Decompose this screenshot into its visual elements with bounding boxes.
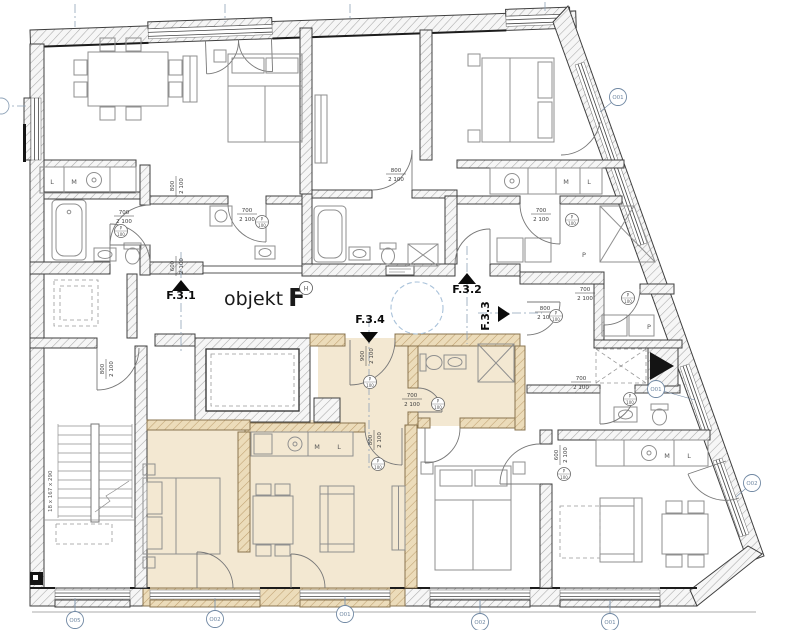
- window-tag: O01: [600, 89, 627, 113]
- svg-text:100: 100: [560, 475, 568, 480]
- elevator-shaft: [195, 338, 310, 422]
- svg-text:O02: O02: [746, 481, 757, 487]
- svg-text:2 100: 2 100: [573, 385, 589, 391]
- dashed-circle-marker: [391, 282, 443, 334]
- window-tag: O02: [736, 475, 761, 498]
- door-dimension: 7002 100: [114, 210, 134, 225]
- fixture-label: L: [337, 443, 341, 451]
- door-dimension: 7002 100: [237, 208, 257, 223]
- svg-text:100: 100: [117, 232, 125, 237]
- fixture-label: M: [71, 178, 77, 186]
- bathtub: [52, 200, 86, 260]
- svg-text:900: 900: [360, 350, 366, 361]
- svg-text:700: 700: [242, 208, 253, 214]
- svg-text:100: 100: [552, 317, 560, 322]
- svg-text:O01: O01: [339, 612, 350, 618]
- door-tag: P100: [115, 225, 128, 238]
- staircase: 18 x 167 x 290: [30, 424, 135, 585]
- svg-text:O01: O01: [612, 95, 623, 101]
- washing-machines: [497, 238, 551, 262]
- door-tag: P100: [372, 458, 385, 471]
- svg-text:100: 100: [568, 221, 576, 226]
- svg-text:O02: O02: [209, 617, 220, 623]
- svg-text:O01: O01: [604, 620, 615, 626]
- svg-text:2 100: 2 100: [116, 219, 132, 225]
- svg-text:700: 700: [407, 393, 418, 399]
- svg-text:100: 100: [624, 299, 632, 304]
- door-dimension: 6002 100: [554, 445, 569, 465]
- double-bed-3: [421, 462, 525, 570]
- fixture-label: L: [687, 452, 691, 460]
- unit-marker-F.3.2: F.3.2: [452, 273, 482, 296]
- fixture-label: M: [563, 178, 569, 186]
- hall-sink: [255, 246, 275, 259]
- fixture-label: M: [664, 452, 670, 460]
- svg-text:800: 800: [540, 306, 551, 312]
- svg-text:2 100: 2 100: [369, 348, 375, 364]
- dining-table: [74, 38, 182, 120]
- door-tag: P100: [566, 214, 579, 227]
- toilet-3: [651, 404, 668, 425]
- floor-plan-page: 18 x 167 x 290: [0, 0, 800, 630]
- unit-marker-F.3.1: F.3.1: [166, 280, 196, 302]
- svg-text:O01: O01: [650, 387, 661, 393]
- door-dimension: 8002 100: [170, 176, 185, 196]
- svg-text:2 100: 2 100: [563, 447, 569, 463]
- storage-shaft: [54, 280, 98, 326]
- door-dimension: 7002 100: [571, 376, 591, 391]
- svg-text:2 100: 2 100: [239, 217, 255, 223]
- svg-text:2 100: 2 100: [179, 258, 185, 274]
- door-dimension: 7002 100: [575, 287, 595, 302]
- wardrobe: [315, 95, 327, 163]
- svg-text:700: 700: [119, 210, 130, 216]
- duct-shaft: [408, 244, 438, 266]
- object-title: objektF H: [224, 282, 313, 313]
- svg-text:2 100: 2 100: [179, 178, 185, 194]
- svg-text:2 100: 2 100: [377, 432, 383, 448]
- door-tag: P100: [364, 376, 377, 389]
- tv-cabinet: [183, 56, 197, 102]
- duct-shaft-3: [596, 348, 678, 386]
- svg-text:800: 800: [100, 363, 106, 374]
- door-tag: P100: [550, 310, 563, 323]
- svg-text:100: 100: [374, 465, 382, 470]
- fixture-label: L: [50, 178, 54, 186]
- svg-text:O05: O05: [69, 618, 81, 624]
- unit-marker-F.3.3: F.3.3: [479, 301, 510, 331]
- double-bed: [214, 50, 302, 142]
- dining-table-2: [662, 501, 708, 567]
- bathroom-sink: [94, 248, 116, 261]
- door-tag: P100: [558, 468, 571, 481]
- svg-text:100: 100: [626, 400, 634, 405]
- unit-entrance-markers: F.3.1F.3.2F.3.3F.3.4: [166, 273, 510, 343]
- door-tag: P100: [622, 292, 635, 305]
- fixture-label: M: [314, 443, 320, 451]
- kitchen-counter: [40, 167, 136, 193]
- double-bed-2: [468, 54, 554, 142]
- svg-text:700: 700: [536, 208, 547, 214]
- svg-text:100: 100: [258, 223, 266, 228]
- door-dimension: 8002 100: [100, 359, 115, 379]
- french-door[interactable]: [205, 39, 272, 74]
- fixture-label: L: [587, 178, 591, 186]
- svg-text:700: 700: [576, 376, 587, 382]
- toilet: [124, 243, 141, 264]
- armchair-dashed: [560, 506, 600, 558]
- door-tag: P100: [624, 393, 637, 406]
- fixture-label: P: [582, 251, 586, 259]
- sofa: [600, 498, 642, 562]
- bathroom-sink-2: [349, 247, 370, 260]
- bottom-windows: [30, 588, 697, 607]
- svg-text:F.3.4: F.3.4: [355, 313, 385, 326]
- svg-text:objektF: objektF: [224, 283, 305, 312]
- hydrant-badge-letter: H: [304, 286, 309, 293]
- floor-plan-drawing: 18 x 167 x 290: [0, 0, 800, 630]
- svg-text:600: 600: [554, 449, 560, 460]
- stair-dimension-label: 18 x 167 x 290: [48, 470, 54, 512]
- fixture-label: P: [647, 323, 651, 331]
- svg-text:2 100: 2 100: [533, 217, 549, 223]
- svg-text:100: 100: [366, 383, 374, 388]
- bathtub-2: [314, 206, 346, 262]
- svg-text:2 100: 2 100: [109, 361, 115, 377]
- toilet-2: [380, 243, 396, 264]
- kitchen-counter-2: [490, 168, 602, 194]
- kitchen-counter-3: [596, 440, 708, 466]
- svg-text:2 100: 2 100: [404, 402, 420, 408]
- svg-text:F.3.3: F.3.3: [479, 301, 492, 331]
- svg-text:F.3.2: F.3.2: [452, 283, 482, 296]
- door-dimension: 7002 100: [531, 208, 551, 223]
- door-tag: P100: [256, 216, 269, 229]
- svg-text:600: 600: [170, 260, 176, 271]
- svg-text:800: 800: [391, 168, 402, 174]
- svg-text:700: 700: [580, 287, 591, 293]
- svg-text:F.3.1: F.3.1: [166, 289, 196, 302]
- svg-text:800: 800: [368, 434, 374, 445]
- svg-text:2 100: 2 100: [388, 177, 404, 183]
- svg-text:2 100: 2 100: [577, 296, 593, 302]
- svg-text:100: 100: [434, 405, 442, 410]
- svg-text:800: 800: [170, 180, 176, 191]
- door-tag: P100: [432, 398, 445, 411]
- svg-text:O02: O02: [474, 620, 485, 626]
